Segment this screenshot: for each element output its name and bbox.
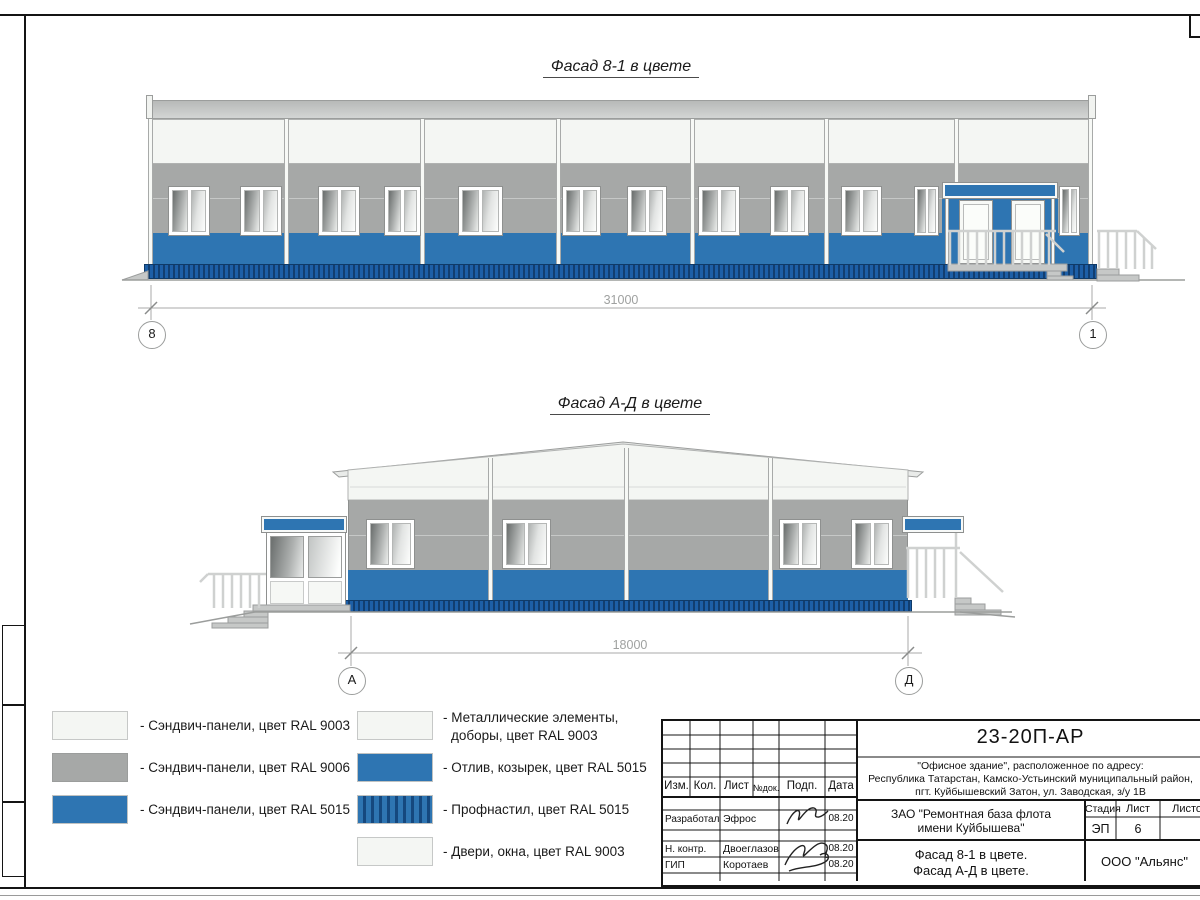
legend-label: - Отлив, козырек, цвет RAL 5015 (443, 760, 647, 775)
list-label: Лист (1116, 803, 1160, 815)
entrance-door (1011, 200, 1045, 264)
facade2-dimension: 18000 (580, 638, 680, 652)
legend-swatch-doors (357, 837, 433, 866)
pilaster (556, 119, 561, 264)
col-data: Дата (825, 780, 857, 792)
col-podp: Подп. (779, 780, 825, 792)
facade1-dimension: 31000 (571, 293, 671, 307)
legend-swatch-profnastil (357, 795, 433, 824)
row3-role: ГИП (665, 860, 685, 871)
row3-name: Коротаев (723, 859, 768, 871)
legend-label: - Сэндвич-панели, цвет RAL 5015 (140, 802, 350, 817)
col-kol: Кол. (690, 780, 720, 792)
axis-circle-1: 1 (1079, 321, 1107, 349)
axis-circle-8: 8 (138, 321, 166, 349)
window (851, 519, 893, 569)
listov-label: Листов (1160, 803, 1200, 815)
pilaster (284, 119, 289, 264)
facade2-title: Фасад А-Д в цвете (470, 395, 790, 413)
row3-date: 08.20 (825, 859, 857, 870)
pilaster (488, 458, 493, 600)
legend-swatch-otliv (357, 753, 433, 782)
pilaster (1088, 119, 1093, 264)
frame-bottom-edge (0, 895, 1200, 896)
stage-value: ЭП (1085, 822, 1116, 836)
project-address-line3: пгт. Куйбышевский Затон, ул. Заводская, … (859, 786, 1200, 798)
frame-margin-cells (2, 625, 25, 877)
legend-label: - Сэндвич-панели, цвет RAL 9006 (140, 760, 350, 775)
facade1-parapet-end-left (146, 95, 153, 119)
window (914, 186, 939, 236)
legend-swatch-ral9006 (52, 753, 128, 782)
legend-label: доборы, цвет RAL 9003 (451, 728, 598, 743)
window (779, 519, 821, 569)
col-list: Лист (720, 780, 753, 792)
pilaster (690, 119, 695, 264)
window (366, 519, 415, 569)
title-block: 23-20П-АР "Офисное здание", расположенно… (661, 719, 1200, 887)
row2-date: 08.20 (825, 843, 857, 854)
window (458, 186, 503, 236)
legend-label: - Металлические элементы, (443, 710, 618, 725)
window (168, 186, 210, 236)
facade1-parapet-end-right (1088, 95, 1096, 119)
signature (785, 808, 828, 871)
pilaster (624, 448, 629, 600)
window (562, 186, 601, 236)
facade2-plinth-corrugated (344, 600, 912, 612)
entrance-vestibule (266, 532, 346, 608)
stage-label: Стадия (1085, 803, 1116, 815)
pilaster (824, 119, 829, 264)
project-address-line1: "Офисное здание", расположенное по адрес… (859, 760, 1200, 772)
frame-bottom (0, 887, 1200, 889)
pilaster (954, 119, 959, 182)
doc-code: 23-20П-АР (857, 726, 1200, 749)
window (841, 186, 882, 236)
list-value: 6 (1116, 822, 1160, 836)
sheet-title-line2: Фасад А-Д в цвете. (859, 863, 1083, 878)
row1-role: Разработал (665, 814, 719, 825)
window (770, 186, 809, 236)
legend-label: - Профнастил, цвет RAL 5015 (443, 802, 629, 817)
window (1059, 186, 1080, 236)
company: ООО "Альянс" (1085, 854, 1200, 869)
vestibule-canopy (261, 516, 347, 533)
window (502, 519, 551, 569)
entrance-door (959, 200, 993, 264)
client-line2: имени Куйбышева" (859, 821, 1083, 835)
facade1-parapet (146, 100, 1095, 119)
entrance-canopy (942, 182, 1058, 199)
legend-label: - Сэндвич-панели, цвет RAL 9003 (140, 718, 350, 733)
pilaster (768, 458, 773, 600)
window (698, 186, 740, 236)
project-address-line2: Республика Татарстан, Камско-Устьинский … (859, 773, 1200, 785)
facade1-band-blue (148, 233, 1093, 264)
row1-date: 08.20 (825, 813, 857, 824)
side-canopy (902, 516, 964, 533)
canopy-post (1051, 199, 1055, 264)
legend-label: - Двери, окна, цвет RAL 9003 (443, 844, 625, 859)
canopy-post (945, 199, 949, 264)
row2-role: Н. контр. (665, 844, 706, 855)
frame-corner-box (1189, 16, 1200, 38)
pilaster (148, 119, 153, 264)
facade1-title: Фасад 8-1 в цвете (461, 58, 781, 76)
window (240, 186, 282, 236)
facade1-band-white (148, 119, 1093, 164)
axis-circle-d: Д (895, 667, 923, 695)
facade1-plinth-corrugated (144, 264, 1097, 279)
drawing-sheet: Фасад 8-1 в цвете (0, 0, 1200, 900)
col-ndok: №док. (753, 783, 779, 793)
window (627, 186, 667, 236)
sheet-title-line1: Фасад 8-1 в цвете. (859, 847, 1083, 862)
window (318, 186, 360, 236)
legend-swatch-ral5015 (52, 795, 128, 824)
frame-top (0, 14, 1200, 16)
row2-name: Двоеглазов (723, 843, 779, 855)
legend-swatch-metal (357, 711, 433, 740)
legend-swatch-ral9003 (52, 711, 128, 740)
axis-circle-a: А (338, 667, 366, 695)
client-line1: ЗАО "Ремонтная база флота (859, 807, 1083, 821)
col-izm: Изм. (663, 780, 690, 792)
row1-name: Эфрос (723, 813, 756, 825)
window (384, 186, 421, 236)
